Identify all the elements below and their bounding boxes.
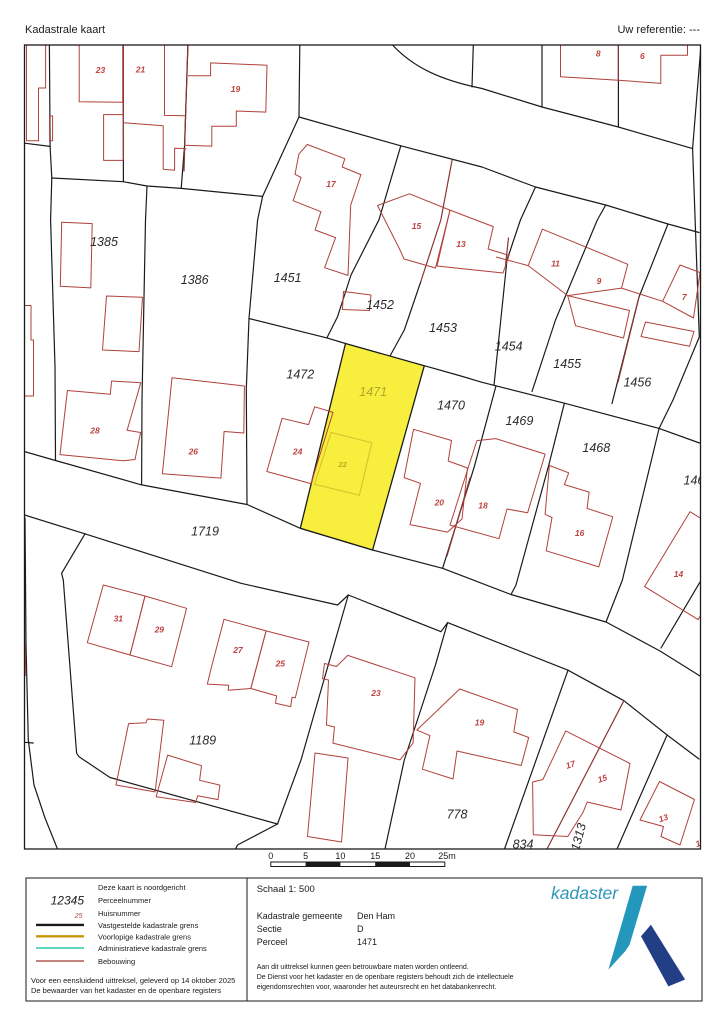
svg-text:D: D <box>357 924 364 934</box>
svg-text:Administratieve kadastrale gre: Administratieve kadastrale grens <box>98 944 207 953</box>
svg-text:18: 18 <box>478 501 488 511</box>
svg-text:16: 16 <box>575 528 585 538</box>
svg-text:kadaster: kadaster <box>551 883 619 903</box>
svg-text:23: 23 <box>95 65 106 75</box>
svg-text:25: 25 <box>74 913 83 920</box>
svg-text:6: 6 <box>640 51 645 61</box>
svg-text:778: 778 <box>447 808 468 822</box>
svg-text:1471: 1471 <box>359 385 387 399</box>
svg-text:28: 28 <box>89 426 100 436</box>
svg-text:19: 19 <box>475 718 485 728</box>
svg-text:31: 31 <box>114 614 124 624</box>
svg-text:Schaal 1: 500: Schaal 1: 500 <box>257 884 315 895</box>
svg-text:1471: 1471 <box>357 937 377 947</box>
svg-text:Perceelnummer: Perceelnummer <box>98 896 151 905</box>
svg-text:1719: 1719 <box>191 525 219 539</box>
svg-text:14: 14 <box>674 569 684 579</box>
svg-text:26: 26 <box>188 447 199 457</box>
svg-text:1455: 1455 <box>553 357 581 371</box>
svg-text:Voorlopige kadastrale grens: Voorlopige kadastrale grens <box>98 933 191 942</box>
svg-text:Uw referentie: ---: Uw referentie: --- <box>617 24 700 36</box>
svg-text:1468: 1468 <box>582 441 610 455</box>
svg-text:Vastgestelde kadastrale grens: Vastgestelde kadastrale grens <box>98 921 199 930</box>
svg-text:Perceel: Perceel <box>257 937 288 947</box>
svg-text:1453: 1453 <box>429 321 457 335</box>
svg-text:20: 20 <box>434 498 445 508</box>
svg-text:21: 21 <box>135 65 146 75</box>
svg-text:Bebouwing: Bebouwing <box>98 957 135 966</box>
svg-text:12345: 12345 <box>51 894 85 908</box>
svg-text:1472: 1472 <box>286 368 314 382</box>
svg-text:De bewaarder van het kadaster: De bewaarder van het kadaster en de open… <box>31 986 221 995</box>
svg-text:1452: 1452 <box>366 298 394 312</box>
svg-text:1385: 1385 <box>90 235 118 249</box>
svg-text:25: 25 <box>275 659 286 669</box>
svg-text:10: 10 <box>335 851 345 861</box>
svg-text:22: 22 <box>337 460 347 469</box>
svg-text:27: 27 <box>232 645 244 655</box>
svg-text:1451: 1451 <box>274 271 302 285</box>
svg-text:9: 9 <box>597 276 602 286</box>
svg-text:Voor een eensluidend uittrekse: Voor een eensluidend uittreksel, gelever… <box>31 976 235 985</box>
svg-text:Huisnummer: Huisnummer <box>98 909 141 918</box>
svg-text:8: 8 <box>596 49 601 59</box>
svg-text:1470: 1470 <box>437 399 465 413</box>
svg-text:0: 0 <box>268 851 273 861</box>
svg-text:De Dienst voor het kadaster en: De Dienst voor het kadaster en de openba… <box>257 974 514 981</box>
svg-text:Deze kaart is noordgericht: Deze kaart is noordgericht <box>98 883 186 892</box>
svg-text:Den Ham: Den Ham <box>357 911 395 921</box>
svg-text:23: 23 <box>370 688 381 698</box>
svg-text:1189: 1189 <box>189 734 216 748</box>
svg-text:Aan dit uittreksel kunnen geen: Aan dit uittreksel kunnen geen betrouwba… <box>257 964 469 971</box>
svg-text:13: 13 <box>456 239 466 249</box>
svg-text:11: 11 <box>551 259 560 269</box>
svg-text:eigendomsrechten voor, waarond: eigendomsrechten voor, waaronder het aut… <box>257 984 497 991</box>
svg-text:17: 17 <box>326 179 337 189</box>
svg-text:25m: 25m <box>438 851 456 861</box>
svg-text:15: 15 <box>370 851 380 861</box>
svg-text:1454: 1454 <box>495 340 523 354</box>
svg-text:5: 5 <box>303 851 308 861</box>
svg-text:1469: 1469 <box>505 414 533 428</box>
svg-text:24: 24 <box>292 447 303 457</box>
svg-text:19: 19 <box>231 84 241 94</box>
svg-text:1456: 1456 <box>623 376 651 390</box>
svg-text:Sectie: Sectie <box>257 924 282 934</box>
svg-text:29: 29 <box>154 625 165 635</box>
svg-text:1386: 1386 <box>181 273 209 287</box>
svg-text:Kadastrale kaart: Kadastrale kaart <box>25 24 105 36</box>
svg-text:15: 15 <box>412 221 422 231</box>
svg-text:Kadastrale gemeente: Kadastrale gemeente <box>257 911 343 921</box>
svg-text:20: 20 <box>405 851 415 861</box>
